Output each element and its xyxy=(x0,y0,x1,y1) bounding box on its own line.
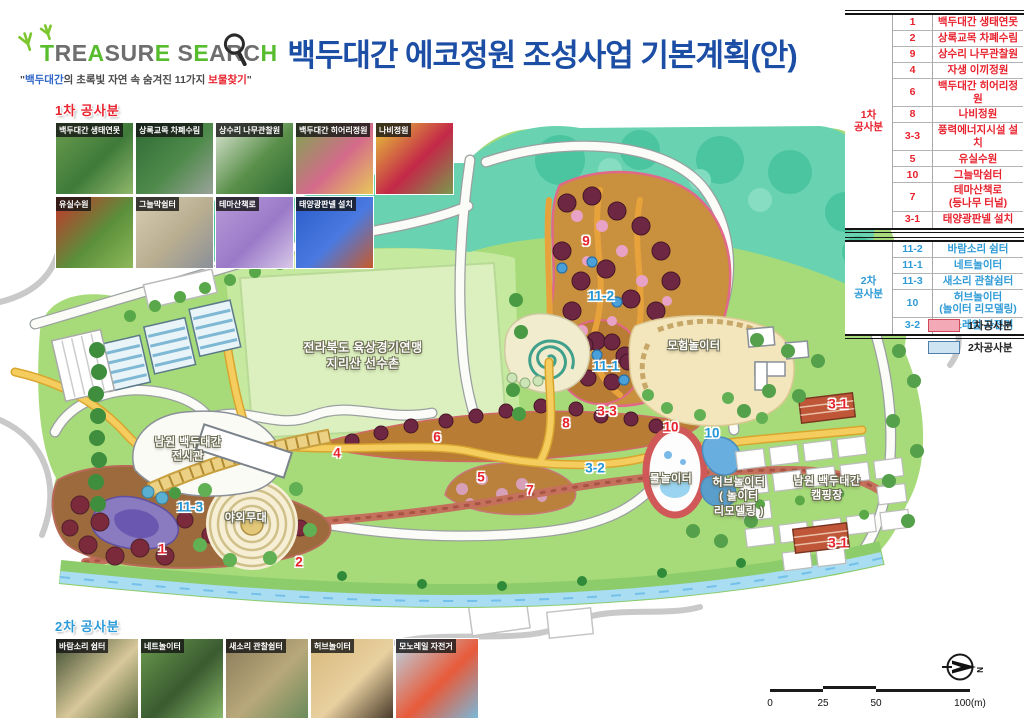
photo-grid-phase2: 2차 공사분 바람소리 쉼터네트놀이터새소리 관찰쉼터허브놀이터모노레일 자전거 xyxy=(55,616,479,720)
photo-thumbnail: 상수리 나무관찰원 xyxy=(215,122,294,195)
logo-subtitle-segment: " xyxy=(247,74,252,86)
scale-segment xyxy=(876,689,970,692)
photo-label: 모노레일 자전거 xyxy=(396,639,456,653)
row-name: 상록교목 차폐수림 xyxy=(933,31,1023,47)
logo-subtitle: "백두대간의 초록빛 자연 속 숨겨진 11가지 보물찾기" xyxy=(20,72,252,87)
photo-label: 테마산책로 xyxy=(216,197,259,211)
photo-grid-phase1-header: 1차 공사분 xyxy=(55,100,454,119)
photo-label: 상수리 나무관찰원 xyxy=(216,123,283,137)
phase-tables: 1차 공사분1백두대간 생태연못2상록교목 차폐수림9상수리 나무관찰원4자생 … xyxy=(845,13,1024,346)
map-number-marker: 5 xyxy=(477,470,485,484)
poster-page: 전라북도 육상경기연맹 지리산 선수촌남원 백두대간 전시관야외무대모험놀이터물… xyxy=(0,0,1024,724)
page-title: 백두대간 에코정원 조성사업 기본계획(안) xyxy=(262,30,822,75)
logo-letter: E xyxy=(193,40,209,67)
photo-row: 바람소리 쉼터네트놀이터새소리 관찰쉼터허브놀이터모노레일 자전거 xyxy=(55,638,479,719)
map-number-marker: 10 xyxy=(663,420,678,434)
photo-row: 유실수원그늘막쉼터테마산책로태양광판넬 설치 xyxy=(55,196,454,269)
photo-thumbnail: 그늘막쉼터 xyxy=(135,196,214,269)
phase-table-1: 1차 공사분1백두대간 생태연못2상록교목 차폐수림9상수리 나무관찰원4자생 … xyxy=(845,13,1024,230)
scale-label: 25 xyxy=(817,698,828,709)
photo-thumbnail: 바람소리 쉼터 xyxy=(55,638,139,719)
logo-subtitle-segment: 백두대간 xyxy=(25,74,64,86)
logo-letter: E xyxy=(72,40,88,67)
logo: TREASURE SEARCH "백두대간의 초록빛 자연 속 숨겨진 11가지… xyxy=(14,22,264,96)
north-compass: N xyxy=(938,648,1002,686)
photo-thumbnail: 태양광판넬 설치 xyxy=(295,196,374,269)
row-name: 백두대간 생태연못 xyxy=(933,15,1023,31)
legend-swatch xyxy=(928,319,960,332)
map-number-marker: 11-2 xyxy=(588,289,614,303)
photo-thumbnail: 상록교목 차폐수림 xyxy=(135,122,214,195)
photo-thumbnail: 새소리 관찰쉼터 xyxy=(225,638,309,719)
row-number: 10 xyxy=(893,167,933,183)
row-number: 5 xyxy=(893,151,933,167)
logo-letter: R xyxy=(138,40,155,67)
map-number-marker: 11-3 xyxy=(177,500,203,514)
map-number-marker: 10 xyxy=(704,426,719,440)
logo-letter: E xyxy=(155,40,171,67)
logo-letter: S xyxy=(105,40,121,67)
map-number-marker: 1 xyxy=(158,542,166,556)
row-number: 10 xyxy=(893,290,933,318)
photo-label: 그늘막쉼터 xyxy=(136,197,179,211)
logo-subtitle-segment: 보물찾기 xyxy=(208,74,247,86)
row-number: 7 xyxy=(893,183,933,211)
row-name: 태양광판넬 설치 xyxy=(933,212,1023,228)
row-name: 네트놀이터 xyxy=(933,258,1023,274)
map-number-marker: 3-1 xyxy=(828,397,848,411)
map-number-marker: 3-3 xyxy=(597,404,617,418)
phase-table-group-label: 1차 공사분 xyxy=(845,15,893,228)
row-number: 4 xyxy=(893,63,933,79)
logo-letter xyxy=(171,40,178,67)
map-area-label: 남원 백두대간 캠핑장 xyxy=(793,475,860,504)
photo-thumbnail: 네트놀이터 xyxy=(140,638,224,719)
row-name: 그늘막쉼터 xyxy=(933,167,1023,183)
map-number-marker: 3-1 xyxy=(828,536,848,550)
scale-segment xyxy=(770,689,823,692)
photo-label: 바람소리 쉼터 xyxy=(56,639,108,653)
logo-letter: R xyxy=(55,40,72,67)
phase-table-group-label: 2차 공사분 xyxy=(845,242,893,334)
logo-letter: T xyxy=(40,40,55,67)
photo-thumbnail: 백두대간 생태연못 xyxy=(55,122,134,195)
row-number: 11-3 xyxy=(893,274,933,290)
compass-n-label: N xyxy=(975,667,984,673)
legend-label: 2차공사분 xyxy=(968,340,1012,355)
photo-thumbnail: 모노레일 자전거 xyxy=(395,638,479,719)
photo-label: 나비정원 xyxy=(376,123,411,137)
photo-thumbnail: 허브놀이터 xyxy=(310,638,394,719)
row-name: 테마산책로 (등나무 터널) xyxy=(933,183,1023,211)
map-area-label: 남원 백두대간 전시관 xyxy=(154,436,221,465)
row-number: 3-1 xyxy=(893,212,933,228)
row-number: 3-3 xyxy=(893,123,933,151)
row-name: 허브놀이터 (놀이터 리모델링) xyxy=(933,290,1023,318)
row-name: 나비정원 xyxy=(933,107,1023,123)
row-number: 3-2 xyxy=(893,318,933,334)
map-area-label: 모험놀이터 xyxy=(667,339,720,353)
scale-label: 50 xyxy=(870,698,881,709)
map-number-marker: 2 xyxy=(295,555,303,569)
map-number-marker: 8 xyxy=(562,416,570,430)
logo-subtitle-segment: 의 초록빛 자연 속 숨겨진 11가지 xyxy=(64,74,209,86)
photo-label: 백두대간 생태연못 xyxy=(56,123,123,137)
row-number: 1 xyxy=(893,15,933,31)
photo-label: 유실수원 xyxy=(56,197,91,211)
magnifier-icon xyxy=(220,32,254,66)
scale-label: 100(m) xyxy=(954,698,986,709)
photo-label: 새소리 관찰쉼터 xyxy=(226,639,286,653)
logo-letter: A xyxy=(88,40,105,67)
row-number: 11-1 xyxy=(893,258,933,274)
photo-thumbnail: 백두대간 히어리정원 xyxy=(295,122,374,195)
map-number-marker: 3-2 xyxy=(585,461,605,475)
legend-row: 1차공사분 xyxy=(928,318,1012,333)
map-number-marker: 7 xyxy=(526,483,534,497)
map-legend: 1차공사분2차공사분 xyxy=(928,318,1012,362)
row-name: 바람소리 쉼터 xyxy=(933,242,1023,258)
legend-row: 2차공사분 xyxy=(928,340,1012,355)
photo-thumbnail: 유실수원 xyxy=(55,196,134,269)
map-number-marker: 11-1 xyxy=(593,359,619,373)
map-number-marker: 6 xyxy=(433,430,441,444)
row-number: 6 xyxy=(893,79,933,107)
photo-label: 상록교목 차폐수림 xyxy=(136,123,203,137)
row-name: 상수리 나무관찰원 xyxy=(933,47,1023,63)
photo-grid-phase1: 1차 공사분 백두대간 생태연못상록교목 차폐수림상수리 나무관찰원백두대간 히… xyxy=(55,100,454,270)
scale-label: 0 xyxy=(767,698,773,709)
photo-thumbnail: 테마산책로 xyxy=(215,196,294,269)
map-area-label: 허브놀이터 ( 놀이터 리모델링 ) xyxy=(712,476,765,519)
legend-swatch xyxy=(928,341,960,354)
map-area-label: 전라북도 육상경기연맹 지리산 선수촌 xyxy=(303,340,422,371)
logo-letter: S xyxy=(177,40,193,67)
photo-label: 네트놀이터 xyxy=(141,639,184,653)
row-number: 2 xyxy=(893,31,933,47)
map-area-label: 물놀이터 xyxy=(650,472,692,486)
legend-label: 1차공사분 xyxy=(968,318,1012,333)
photo-row: 백두대간 생태연못상록교목 차폐수림상수리 나무관찰원백두대간 히어리정원나비정… xyxy=(55,122,454,195)
row-number: 11-2 xyxy=(893,242,933,258)
row-name: 자생 이끼정원 xyxy=(933,63,1023,79)
row-name: 새소리 관찰쉼터 xyxy=(933,274,1023,290)
row-number: 8 xyxy=(893,107,933,123)
logo-letter: U xyxy=(121,40,138,67)
map-area-label: 야외무대 xyxy=(225,511,267,525)
row-name: 유실수원 xyxy=(933,151,1023,167)
row-number: 9 xyxy=(893,47,933,63)
photo-label: 허브놀이터 xyxy=(311,639,354,653)
row-name: 풍력에너지시설 설치 xyxy=(933,123,1023,151)
row-name: 백두대간 히어리정원 xyxy=(933,79,1023,107)
map-number-marker: 4 xyxy=(333,446,341,460)
photo-thumbnail: 나비정원 xyxy=(375,122,454,195)
photo-label: 백두대간 히어리정원 xyxy=(296,123,370,137)
map-number-marker: 9 xyxy=(582,234,590,248)
photo-label: 태양광판넬 설치 xyxy=(296,197,356,211)
scale-segment xyxy=(823,686,876,689)
photo-grid-phase2-header: 2차 공사분 xyxy=(55,616,479,635)
